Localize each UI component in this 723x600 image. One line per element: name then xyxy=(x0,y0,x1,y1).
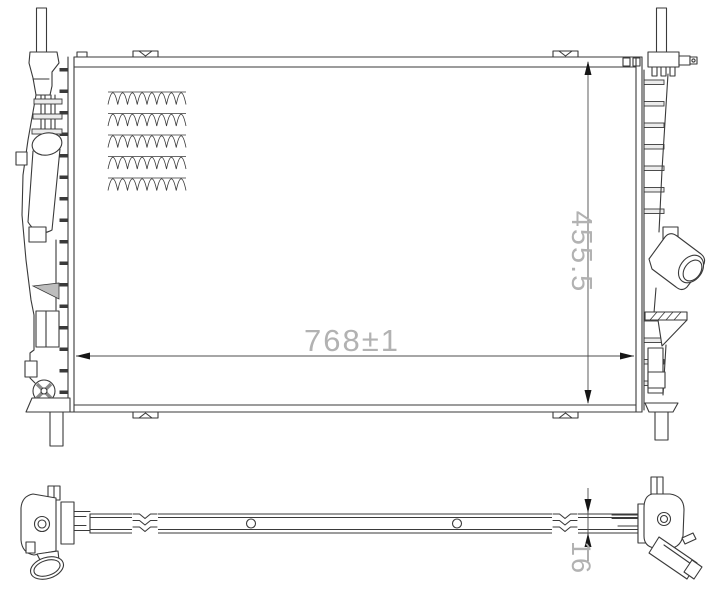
top-left-mounting-pin xyxy=(37,8,47,52)
width-dimension: 768±1 xyxy=(76,323,634,360)
top-right-mounting-pin xyxy=(657,8,667,52)
bar-hole xyxy=(453,519,462,528)
front-view: 768±1 455.5 xyxy=(16,8,709,446)
bottom-view: 16 xyxy=(21,477,702,583)
bottom-right-mounting-pin xyxy=(655,412,668,440)
thickness-dimension-label: 16 xyxy=(566,541,596,575)
top-left-tab xyxy=(77,52,87,57)
dim-arrow-up xyxy=(585,61,592,75)
technical-drawing-page: 768±1 455.5 xyxy=(0,0,723,600)
core-frame xyxy=(68,52,642,412)
right-foot xyxy=(645,403,678,412)
top-clip-notch xyxy=(559,51,572,56)
hatched-wedge xyxy=(33,283,59,299)
right-small-box xyxy=(648,372,665,388)
radiator-technical-drawing: 768±1 455.5 xyxy=(0,0,723,600)
dim-arrow-down xyxy=(585,499,592,513)
bottom-left-mounting-pin xyxy=(50,412,63,446)
width-dimension-label: 768±1 xyxy=(304,323,400,358)
dim-arrow-left xyxy=(76,353,90,360)
left-base-plate xyxy=(26,398,70,412)
bottom-clip-notch xyxy=(139,413,152,418)
right-nub xyxy=(690,57,697,64)
left-upper-bracket xyxy=(29,52,59,95)
left-small-box xyxy=(25,361,37,377)
bottom-right-tank xyxy=(612,477,702,579)
top-clip-notch xyxy=(139,51,152,56)
top-right-block xyxy=(623,58,630,66)
bar-hole xyxy=(247,519,256,528)
dim-arrow-down xyxy=(585,390,592,404)
left-tank xyxy=(16,8,70,446)
height-dimension-label: 455.5 xyxy=(565,211,597,294)
right-brace xyxy=(658,320,687,346)
right-tank xyxy=(644,8,709,440)
radiator-fins-pattern xyxy=(108,92,186,191)
left-end-plate xyxy=(61,502,74,544)
left-hose-end xyxy=(28,553,67,583)
bottom-clip-notch xyxy=(559,413,572,418)
left-lower-frame xyxy=(36,311,59,347)
left-side-tab xyxy=(16,152,27,165)
left-box xyxy=(29,227,46,242)
mounting-clips xyxy=(133,51,578,418)
right-nub-arm xyxy=(679,56,690,65)
right-cap xyxy=(648,52,679,67)
bottom-left-tank xyxy=(21,486,90,583)
height-dimension: 455.5 xyxy=(565,61,597,404)
right-outlet-nub xyxy=(682,533,696,544)
left-end-port xyxy=(35,517,50,532)
left-end-prongs xyxy=(74,512,90,531)
bottom-bar-clips xyxy=(132,513,578,534)
dim-arrow-right xyxy=(620,353,634,360)
right-end-port xyxy=(658,513,671,526)
inlet-hose-body xyxy=(28,149,60,233)
